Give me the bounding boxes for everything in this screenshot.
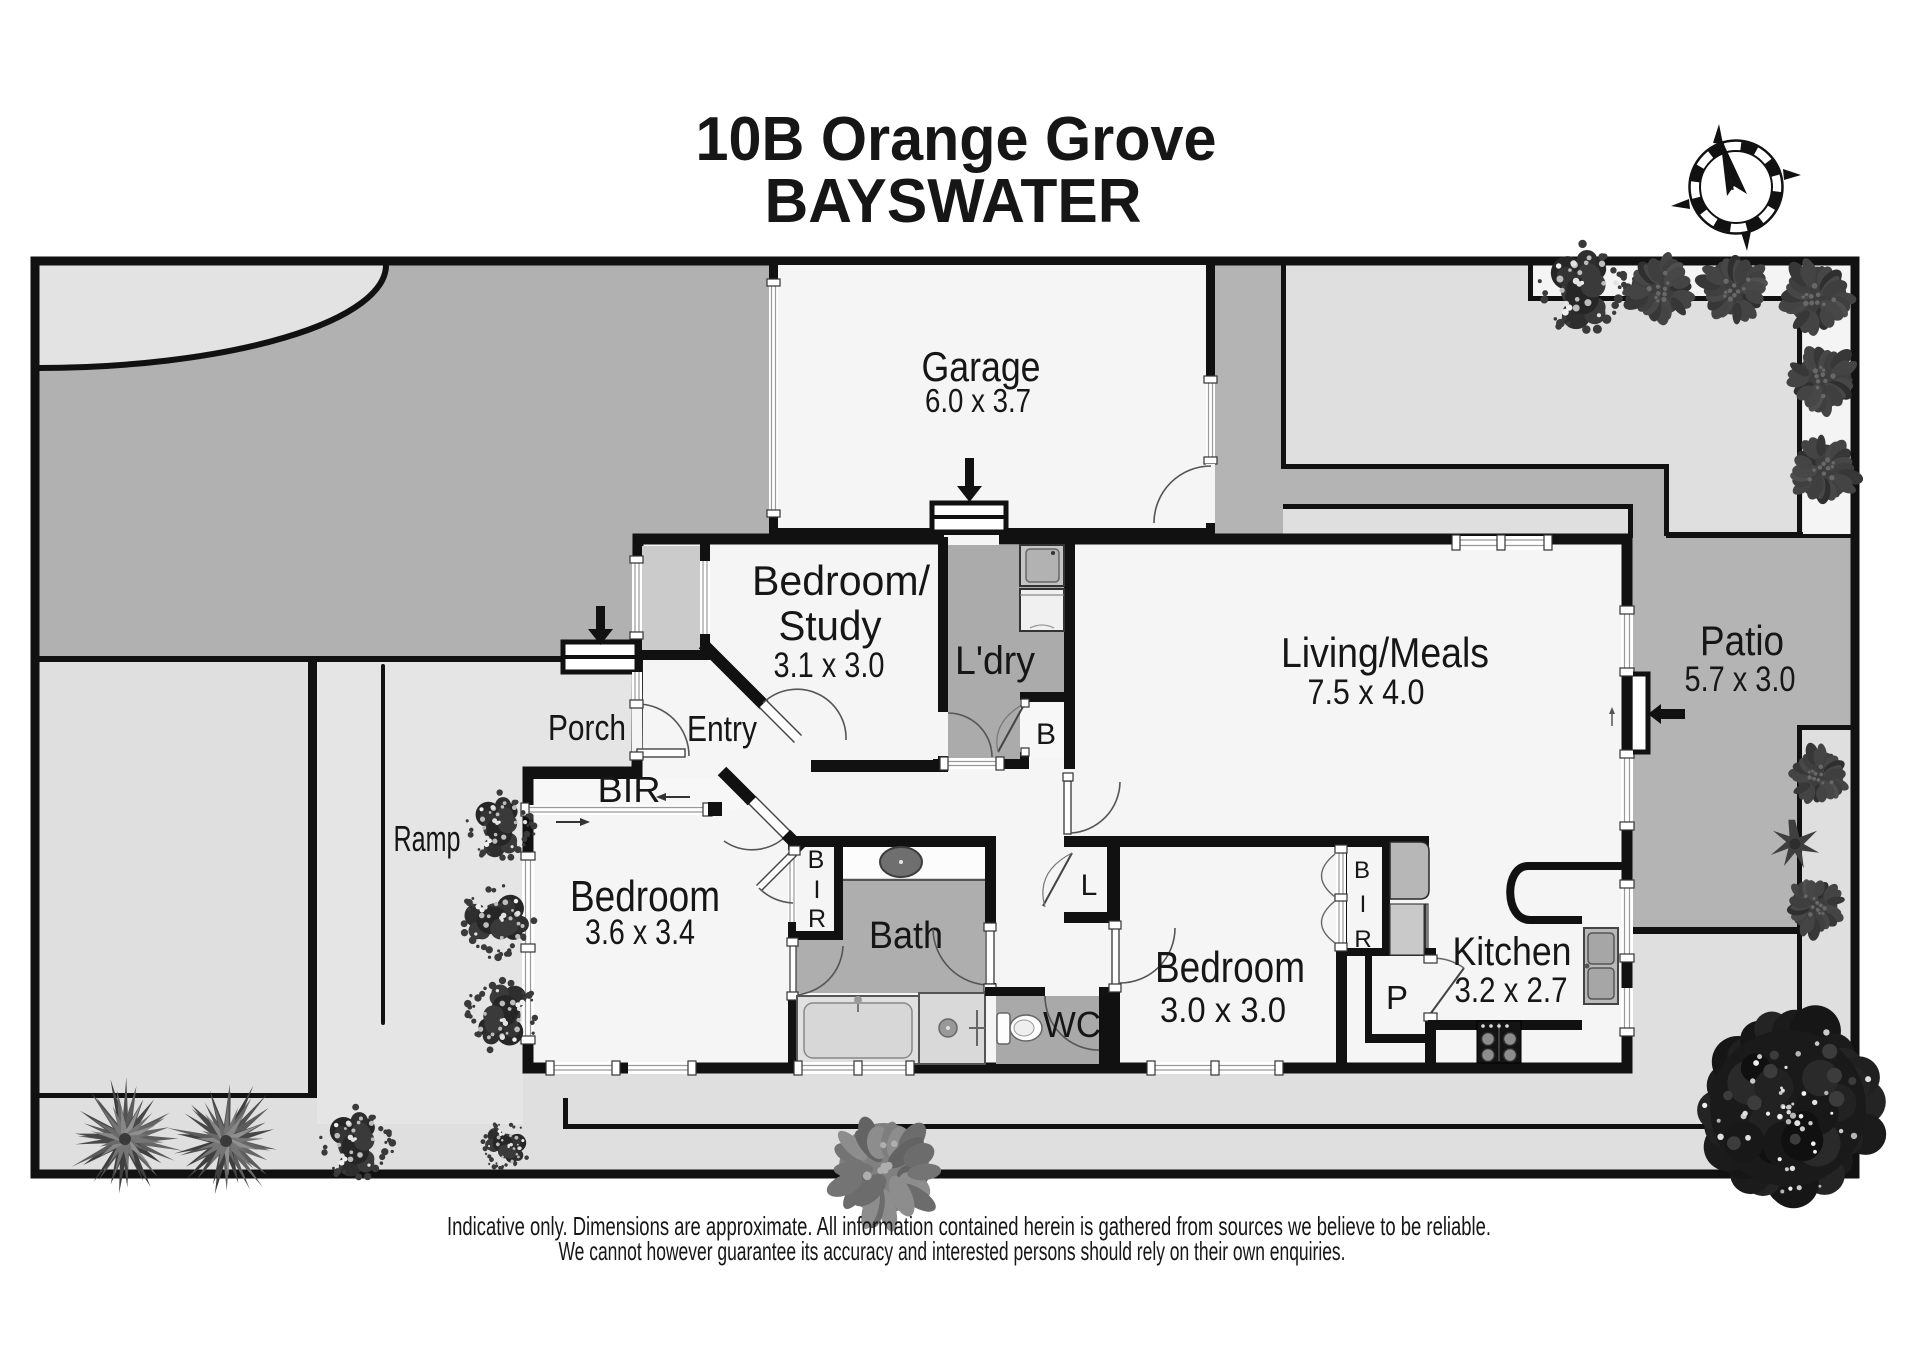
svg-text:Bedroom/: Bedroom/	[752, 557, 930, 604]
svg-text:3.0 x 3.0: 3.0 x 3.0	[1160, 991, 1286, 1030]
svg-text:I: I	[814, 876, 821, 904]
svg-text:L: L	[1081, 869, 1098, 902]
svg-text:Patio: Patio	[1700, 617, 1784, 664]
svg-text:6.0 x 3.7: 6.0 x 3.7	[925, 382, 1031, 419]
svg-text:WC: WC	[1043, 1004, 1101, 1045]
svg-text:Bedroom: Bedroom	[1155, 943, 1305, 992]
svg-text:Bath: Bath	[869, 915, 943, 957]
svg-text:3.2 x 2.7: 3.2 x 2.7	[1455, 971, 1568, 1010]
svg-text:R: R	[1354, 926, 1371, 953]
svg-text:We cannot however guarantee it: We cannot however guarantee its accuracy…	[559, 1236, 1346, 1266]
svg-text:L'dry: L'dry	[955, 639, 1035, 683]
svg-text:5.7 x 3.0: 5.7 x 3.0	[1685, 660, 1796, 699]
svg-text:10B Orange Grove: 10B Orange Grove	[696, 105, 1217, 174]
svg-text:7.5 x 4.0: 7.5 x 4.0	[1308, 673, 1425, 712]
svg-text:P: P	[1386, 979, 1408, 1016]
svg-text:B: B	[808, 846, 825, 874]
svg-text:B: B	[1354, 857, 1370, 884]
svg-text:3.6 x 3.4: 3.6 x 3.4	[585, 913, 695, 952]
svg-text:BAYSWATER: BAYSWATER	[765, 167, 1142, 236]
svg-text:3.1 x 3.0: 3.1 x 3.0	[774, 646, 885, 685]
svg-text:Porch: Porch	[548, 707, 626, 748]
svg-text:Kitchen: Kitchen	[1453, 930, 1572, 974]
svg-text:Entry: Entry	[687, 708, 757, 749]
svg-text:B: B	[1036, 718, 1056, 751]
svg-text:R: R	[808, 905, 826, 933]
svg-text:BIR: BIR	[598, 769, 661, 810]
svg-text:I: I	[1360, 891, 1367, 918]
svg-text:Living/Meals: Living/Meals	[1281, 629, 1489, 676]
svg-text:Ramp: Ramp	[394, 818, 461, 859]
svg-text:Study: Study	[779, 602, 882, 649]
